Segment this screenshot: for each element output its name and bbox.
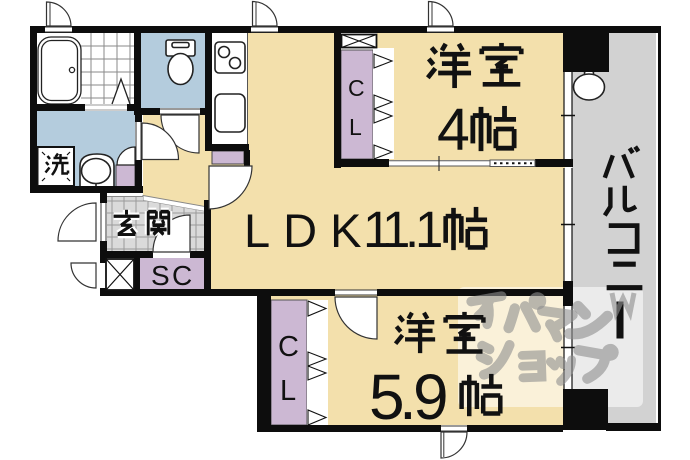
svg-text:LDK: LDK [244, 204, 374, 257]
svg-text:1: 1 [415, 201, 443, 258]
svg-text:L: L [349, 114, 362, 140]
svg-text:L: L [280, 375, 296, 407]
svg-text:4: 4 [437, 97, 470, 163]
svg-text:C: C [172, 260, 192, 291]
svg-text:C: C [278, 331, 299, 363]
svg-text:C: C [348, 75, 365, 101]
svg-text:S: S [151, 260, 170, 291]
svg-text:9: 9 [413, 361, 449, 433]
